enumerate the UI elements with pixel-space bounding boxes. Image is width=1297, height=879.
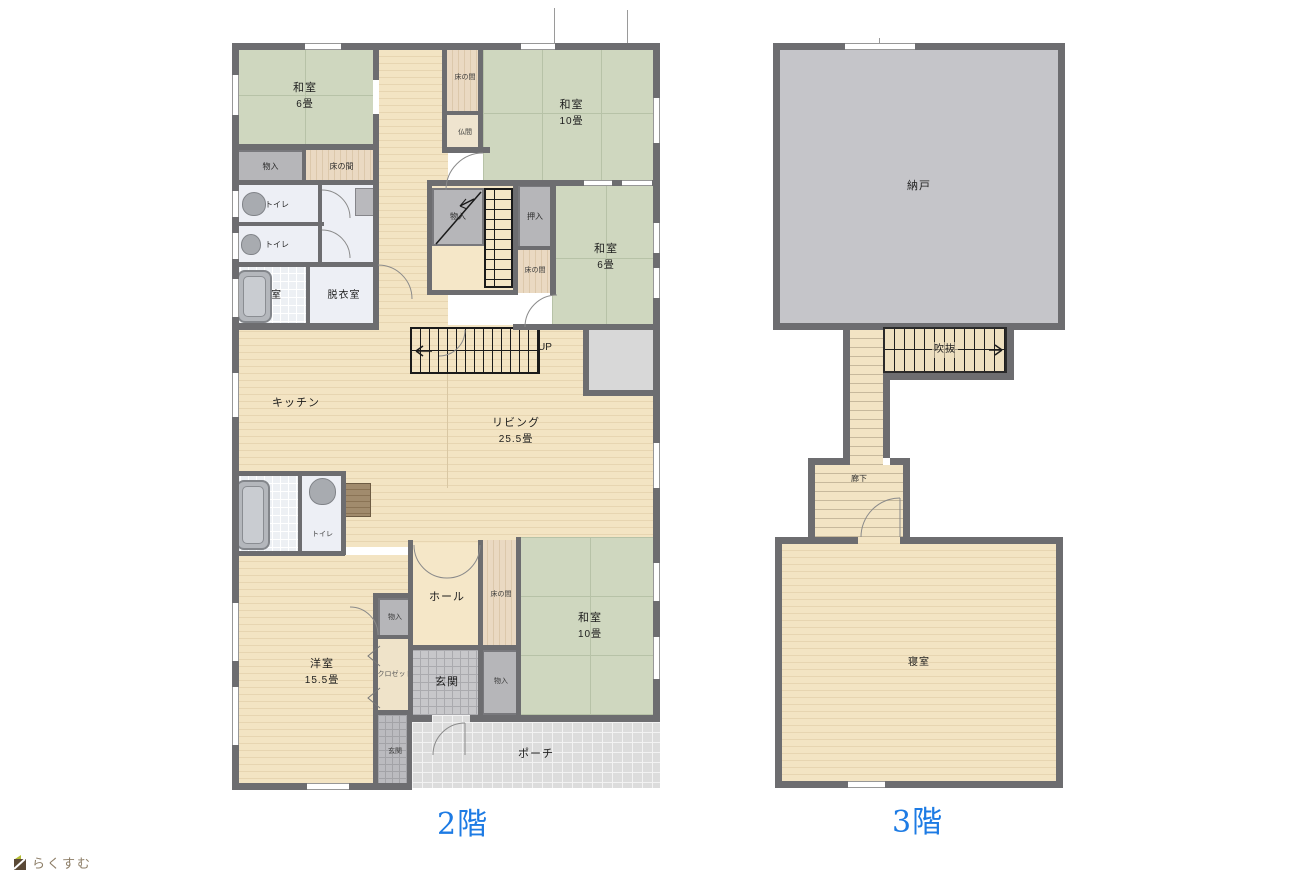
wall-segment (513, 186, 518, 295)
wall-segment (516, 537, 521, 715)
room-label: 床の間 (455, 73, 476, 84)
room-shinshitsu: 寝室 (775, 537, 1063, 788)
leader-line (627, 10, 628, 43)
washbasin (355, 188, 375, 216)
room-monoire-hall: 物入 (378, 598, 412, 638)
wall-segment (550, 185, 556, 295)
wall-segment (373, 593, 378, 715)
room-label: 玄関 (388, 747, 402, 758)
stairs-up-label: UP (538, 342, 552, 353)
wall-segment (427, 186, 432, 295)
window (232, 233, 239, 259)
door-opening (432, 715, 470, 722)
wall-segment (583, 330, 589, 396)
living-label: リビング 25.5畳 (446, 415, 586, 448)
window (232, 75, 239, 115)
room-size-label: 25.5畳 (446, 432, 586, 448)
cabinet (343, 483, 371, 517)
wall-segment (808, 458, 815, 540)
room-label: 和室 (578, 610, 602, 627)
room-label: ポーチ (518, 746, 554, 763)
wall-segment (408, 540, 413, 715)
wall-segment (373, 635, 412, 639)
wall-segment (373, 593, 412, 598)
window (653, 268, 660, 298)
room-closet: クロゼット (378, 638, 412, 712)
room-datsuishitsu: 脱衣室 (310, 265, 378, 327)
void-square (588, 330, 657, 392)
window (653, 563, 660, 601)
stair-strip (850, 330, 883, 465)
floor2-plan: 和室 6畳 物入 床の間 トイレ トイレ 浴室 脱衣室 床の間 仏間 和室 (232, 43, 660, 790)
room-label: トイレ (265, 239, 289, 251)
room-label: トイレ (265, 199, 289, 211)
leader-tick (879, 38, 880, 43)
window (622, 180, 652, 186)
window (232, 191, 239, 217)
wall-segment (306, 267, 310, 323)
room-label: 仏間 (458, 128, 472, 139)
room-label: 和室 (293, 80, 317, 97)
room-size-label: 6畳 (296, 97, 314, 113)
stairs-up (410, 327, 540, 374)
wall-segment (883, 373, 1014, 380)
room-size-label: 10畳 (578, 627, 602, 643)
window (521, 43, 555, 50)
window (307, 783, 349, 790)
toilet-fixture (241, 234, 261, 255)
door-opening (373, 80, 379, 114)
room-monoire-entry: 物入 (482, 650, 520, 715)
window (232, 687, 239, 745)
room-label: 玄関 (435, 674, 459, 691)
room-oshiire: 押入 (518, 185, 552, 249)
room-label: 物入 (450, 211, 466, 223)
room-size-label: 15.5畳 (305, 673, 339, 689)
window (653, 98, 660, 143)
room-label: 納戸 (907, 178, 931, 195)
room-label: 押入 (527, 211, 543, 223)
wall-segment (302, 150, 306, 182)
floor3-plan: 納戸 吹抜 廊下 寝室 (773, 43, 1065, 790)
wall-segment (407, 715, 412, 790)
wall-segment (427, 290, 518, 295)
window (653, 443, 660, 488)
bathtub-inner (242, 486, 264, 544)
toilet-fixture (309, 478, 336, 505)
wall-segment (883, 380, 890, 458)
wall-segment (341, 471, 346, 555)
room-rouka: 廊下 (815, 465, 903, 540)
leader-line (554, 8, 555, 43)
toilet-fixture (242, 192, 266, 216)
stairs-down (484, 188, 513, 288)
room-label: 床の間 (491, 590, 512, 601)
floor2-title: 2階 (437, 799, 488, 843)
room-label: ホール (429, 589, 465, 606)
wall-segment (373, 715, 378, 790)
room-label: リビング (446, 415, 586, 432)
wall-segment (232, 471, 345, 476)
room-label: 床の間 (330, 161, 354, 173)
room-washitsu10-tr: 和室 10畳 (483, 43, 660, 183)
wall-segment (478, 43, 483, 153)
room-size-label: 6畳 (597, 258, 615, 274)
room-size-label: 10畳 (559, 114, 583, 130)
room-washitsu6-tl: 和室 6畳 (232, 43, 378, 150)
window (845, 43, 915, 50)
room-monoire-stairs: 物入 (432, 188, 484, 246)
room-label: 和室 (594, 241, 618, 258)
room-washitsu10-b: 和室 10畳 (520, 537, 660, 715)
room-nando: 納戸 (773, 43, 1065, 330)
porch: ポーチ (412, 722, 660, 788)
room-label: 物入 (263, 161, 279, 173)
window (232, 279, 239, 317)
wall-segment (442, 111, 483, 115)
wall-segment (442, 43, 447, 150)
room-genkan-inner: 玄関 (412, 650, 482, 715)
room-label: トイレ (312, 530, 333, 541)
bathtub-inner (243, 276, 266, 317)
room-label: 寝室 (908, 655, 930, 671)
wall-segment (232, 222, 324, 226)
wall-segment (232, 551, 345, 556)
floor3-title: 3階 (892, 797, 943, 841)
room-label: 洋室 (310, 656, 334, 673)
window (848, 781, 885, 788)
rakusumu-logo-icon (13, 855, 28, 870)
wall-segment (843, 330, 850, 458)
wall-segment (478, 650, 483, 715)
wall-segment (232, 323, 379, 330)
rakusumu-logo: らくすむ (13, 853, 92, 872)
room-label: 物入 (494, 677, 508, 688)
wall-segment (478, 540, 483, 650)
wall-segment (408, 645, 520, 650)
room-washitsu6-r: 和室 6畳 (552, 185, 660, 330)
room-fukinuke: 吹抜 (883, 327, 1007, 373)
wall-segment (442, 147, 490, 153)
window (305, 43, 341, 50)
room-label: 和室 (560, 97, 584, 114)
wall-segment (298, 475, 302, 555)
wall-segment (583, 390, 657, 396)
wall-segment (518, 246, 556, 250)
room-label: 廊下 (851, 473, 867, 485)
wall-segment (903, 458, 910, 540)
room-label: 床の間 (525, 266, 546, 277)
window (232, 603, 239, 661)
wall-segment (318, 182, 322, 266)
window (232, 373, 239, 417)
floorplan-canvas: 和室 6畳 物入 床の間 トイレ トイレ 浴室 脱衣室 床の間 仏間 和室 (0, 0, 1297, 879)
window (653, 223, 660, 253)
wall-segment (653, 43, 660, 722)
door-opening (858, 537, 900, 544)
rakusumu-logo-text: らくすむ (32, 853, 92, 872)
window (584, 180, 612, 186)
room-label: 吹抜 (932, 342, 958, 358)
room-tokonoma-btm: 床の間 (482, 540, 520, 650)
room-tokonoma-mid: 床の間 (518, 249, 552, 293)
kitchen-label: キッチン (272, 395, 320, 412)
room-label: 脱衣室 (328, 288, 361, 304)
room-label: 物入 (388, 613, 402, 624)
window (653, 637, 660, 679)
room-hall: ホール (412, 543, 482, 650)
